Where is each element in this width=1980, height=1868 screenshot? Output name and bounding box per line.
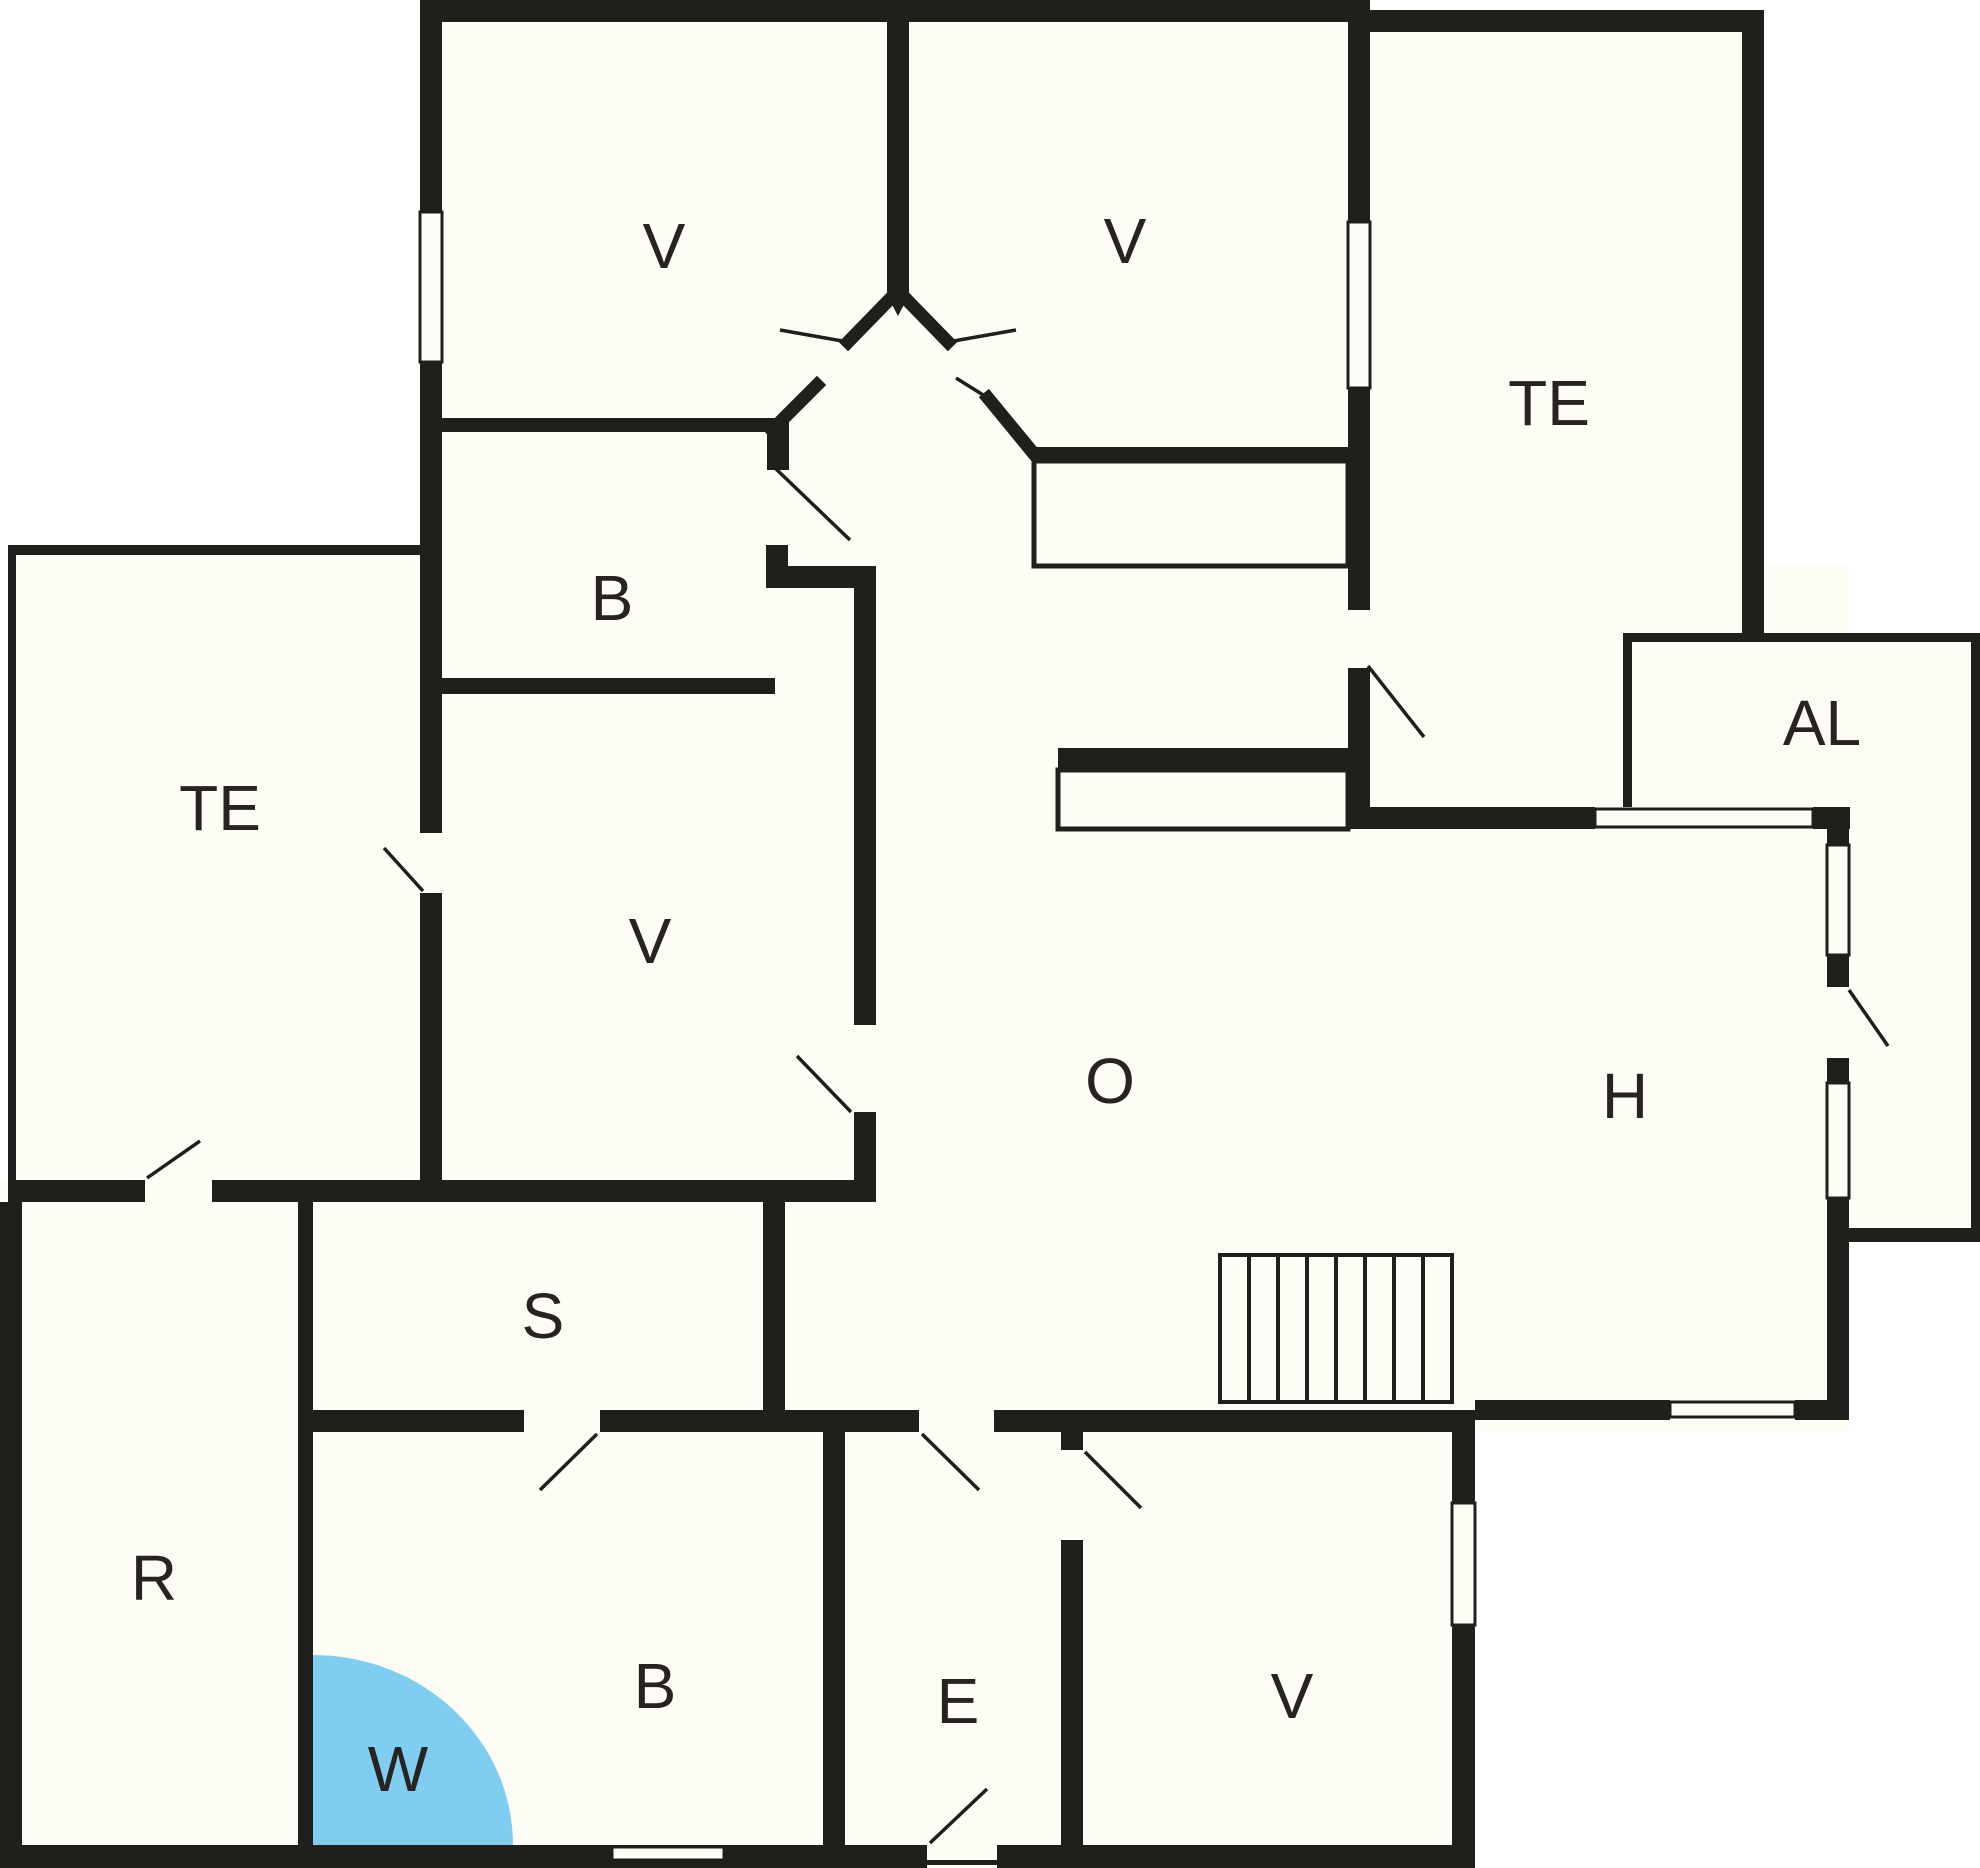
wall-segment: [823, 1432, 845, 1845]
wall-segment: [1827, 1198, 1849, 1420]
window-hall-2: [1827, 1083, 1849, 1198]
porch-top-wall: [1623, 633, 1980, 642]
wall-segment: [766, 545, 788, 588]
wall-segment: [212, 1180, 876, 1202]
wall-segment: [420, 362, 442, 833]
room-label-o: O: [1085, 1045, 1135, 1117]
wall-segment: [600, 1410, 919, 1432]
wall-segment: [420, 893, 442, 1202]
wall-segment: [763, 1202, 785, 1410]
wall-segment: [0, 1845, 612, 1868]
window-hall-1: [1827, 845, 1849, 955]
wall-segment: [854, 588, 876, 1025]
wall-segment: [1742, 10, 1764, 642]
threshold-b-lower: [612, 1847, 724, 1860]
wall-segment: [1475, 1400, 1670, 1420]
terrace-left-top-wall: [8, 545, 442, 555]
wardrobe-lower: [1058, 770, 1348, 829]
staircase: [1220, 1255, 1452, 1402]
porch-left-wall: [1623, 642, 1632, 807]
wall-segment: [1348, 10, 1370, 222]
room-label-r: R: [131, 1542, 177, 1614]
window-v-bottom: [1452, 1503, 1475, 1625]
wall-segment: [1348, 10, 1764, 32]
wall-segment: [298, 1202, 313, 1845]
room-label-v-bottom: V: [1271, 1660, 1314, 1732]
window-te-left: [1348, 222, 1370, 388]
room-label-te-left: TE: [179, 772, 261, 844]
room-label-b-lower: B: [634, 1650, 677, 1722]
wall-segment: [724, 1845, 927, 1868]
room-label-v-top-right: V: [1104, 205, 1147, 277]
wall-segment: [997, 1845, 1475, 1868]
wall-segment: [994, 1410, 1452, 1432]
terrace-left-side-wall: [8, 545, 16, 1202]
wall-segment: [1813, 807, 1850, 829]
wall-segment: [788, 566, 876, 588]
room-label-al: AL: [1783, 687, 1861, 759]
window-left-bedroom: [420, 212, 442, 362]
porch-right-wall: [1971, 633, 1980, 1242]
wall-segment: [1452, 1410, 1475, 1503]
wall-segment: [420, 0, 442, 212]
room-label-v-middle: V: [629, 905, 672, 977]
wall-segment: [887, 0, 909, 295]
wall-segment: [8, 1180, 145, 1202]
wall-segment: [1827, 1058, 1849, 1083]
wall-segment: [1348, 388, 1370, 610]
wall-segment: [1348, 807, 1595, 829]
wardrobe-upper: [1034, 461, 1348, 566]
room-label-w: W: [368, 1733, 429, 1805]
wall-segment: [1058, 748, 1348, 770]
room-label-v-top-left: V: [643, 210, 686, 282]
floor-plan: V V TE B TE V AL O H S R B W E V: [0, 0, 1980, 1868]
window-te-bottom: [1595, 809, 1813, 827]
floor-te-left-block: [8, 545, 442, 1202]
wall-segment: [1348, 668, 1370, 829]
porch-bottom-wall: [1849, 1228, 1980, 1242]
wall-segment: [1827, 955, 1849, 987]
threshold-hall: [1670, 1402, 1795, 1417]
wall-segment: [420, 678, 775, 694]
wall-segment: [420, 418, 767, 432]
wall-segment: [1061, 1432, 1083, 1450]
floor-area: [0, 0, 1980, 1868]
wall-segment: [1827, 829, 1849, 845]
threshold-entry: [927, 1860, 997, 1865]
wall-segment: [1061, 1540, 1083, 1845]
room-label-e: E: [937, 1665, 980, 1737]
room-label-te-top-right: TE: [1508, 367, 1590, 439]
room-label-h: H: [1602, 1060, 1648, 1132]
wall-segment: [300, 1410, 524, 1432]
floor-plan-page: V V TE B TE V AL O H S R B W E V: [0, 0, 1980, 1868]
room-label-s: S: [522, 1280, 565, 1352]
wall-segment: [0, 1202, 22, 1868]
wall-segment: [1452, 1625, 1475, 1845]
room-label-b-upper: B: [591, 562, 634, 634]
